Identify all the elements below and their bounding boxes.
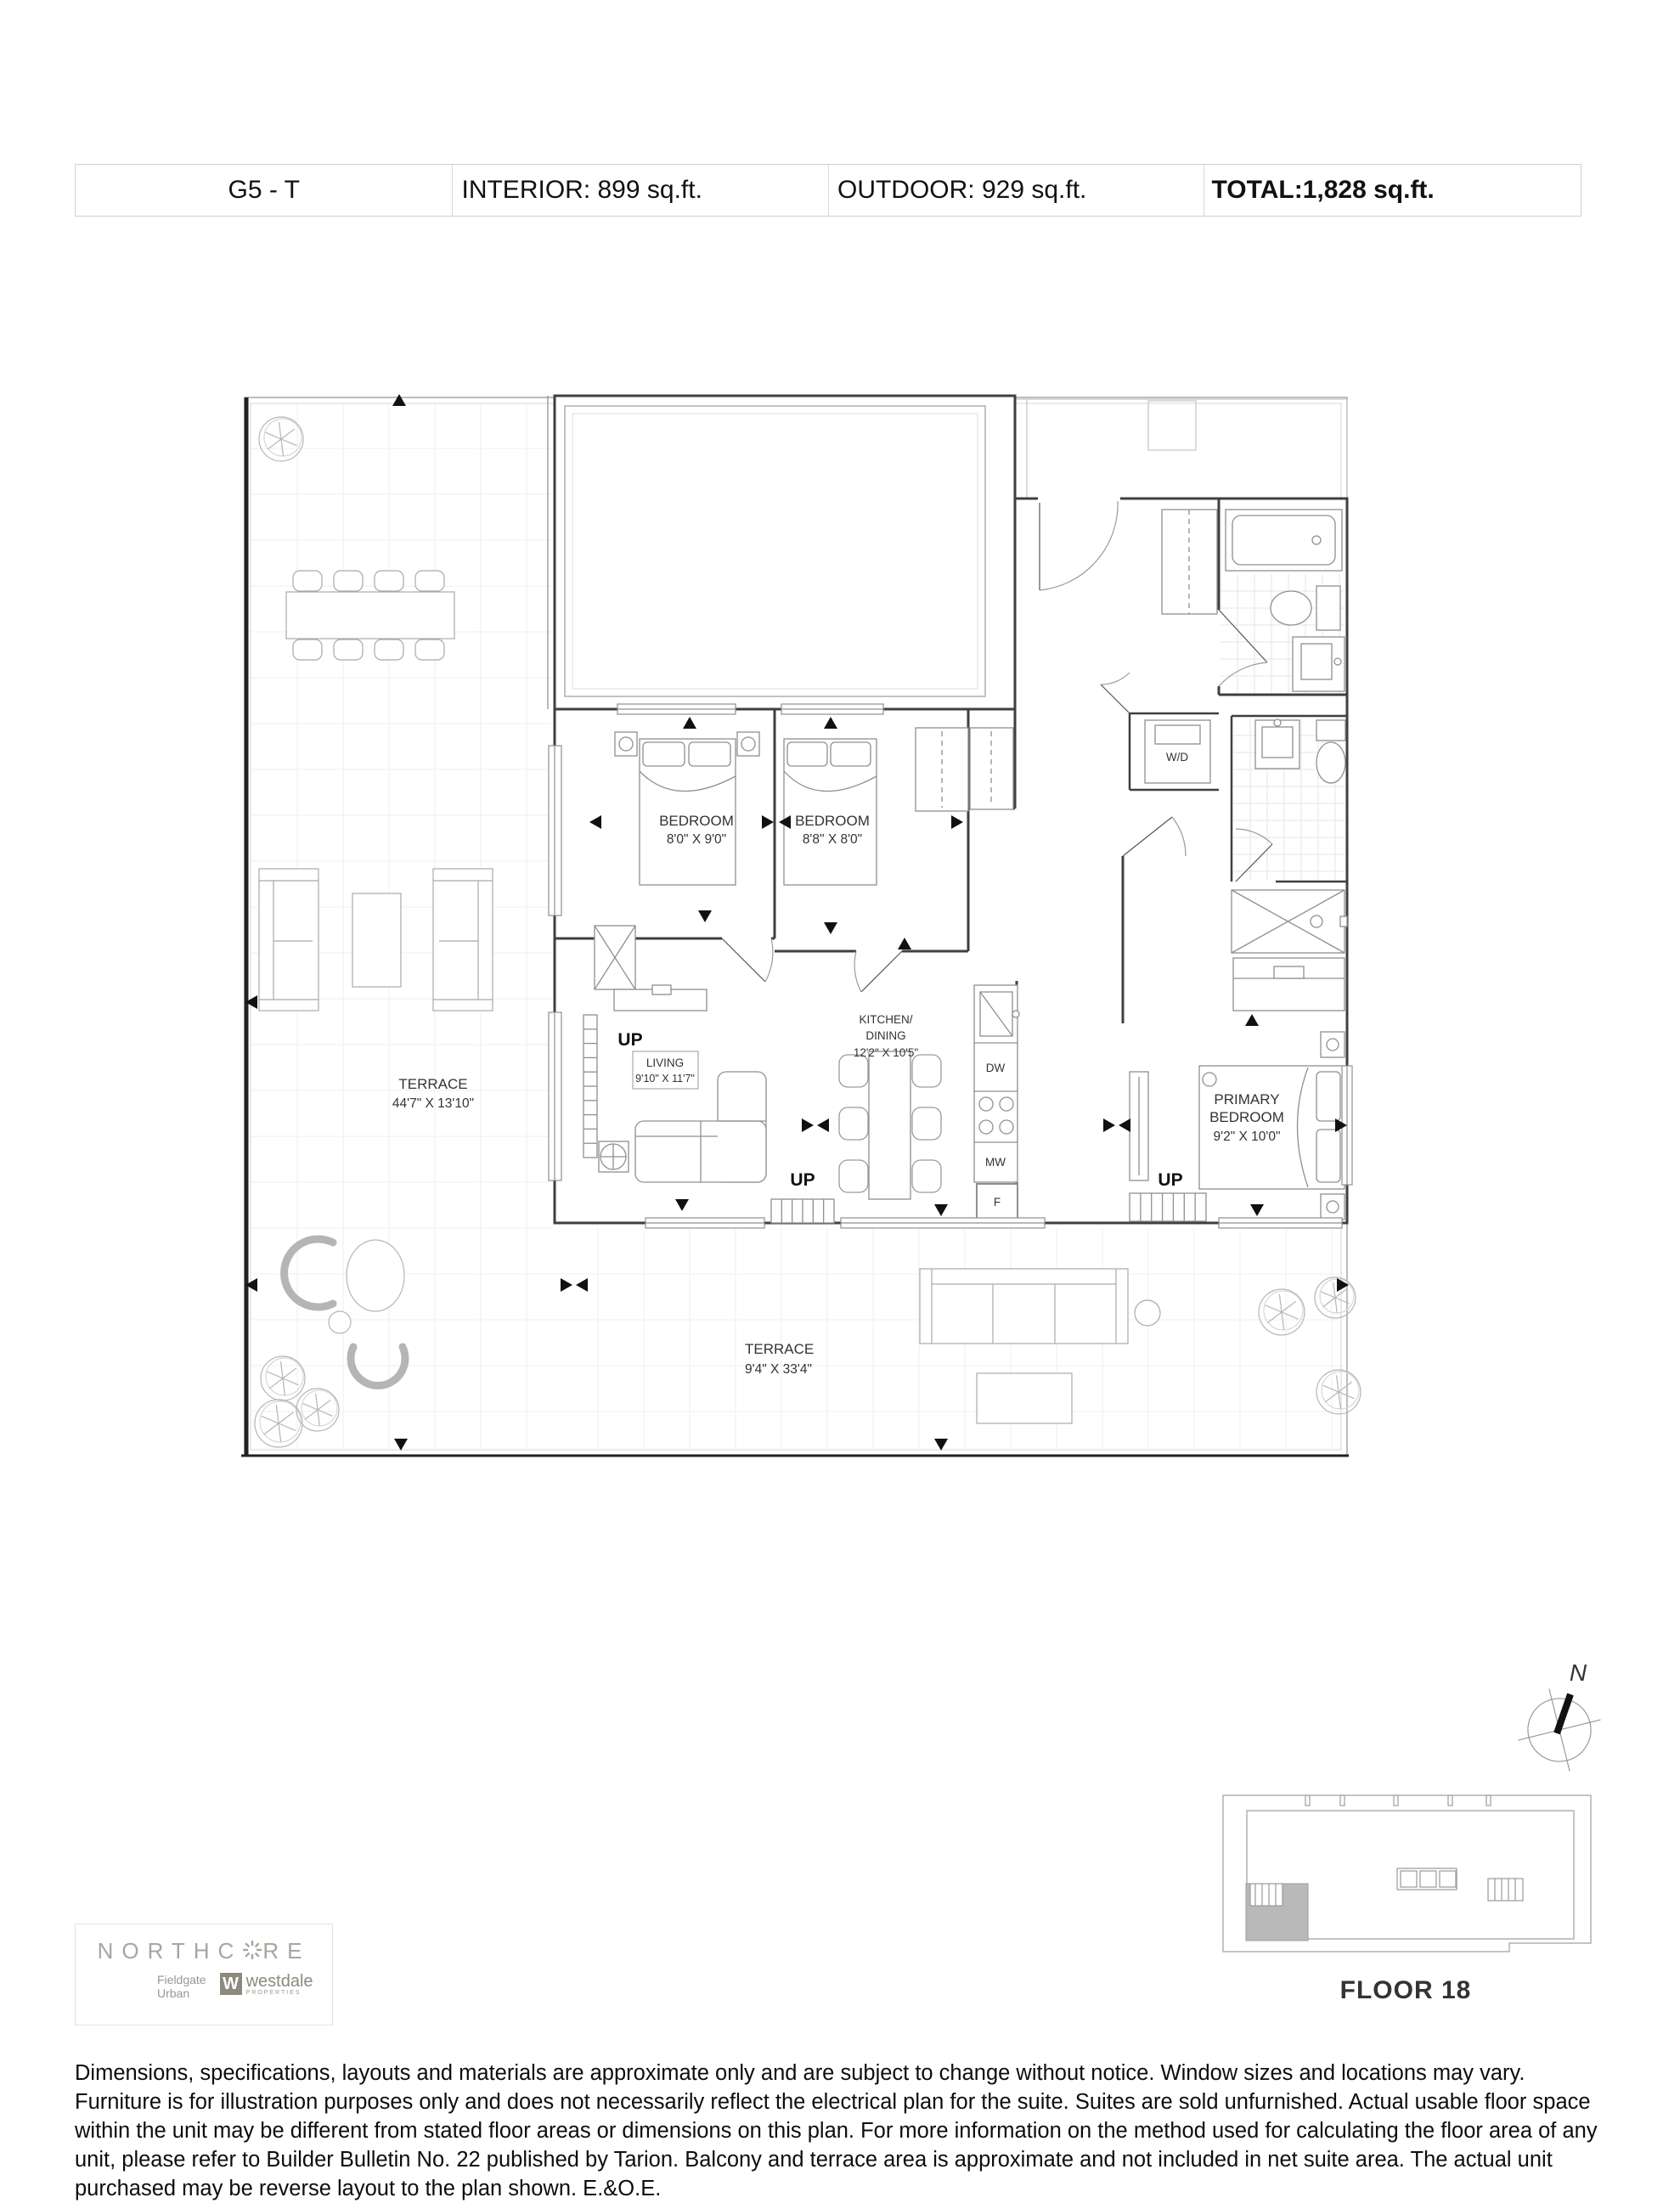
window: [781, 704, 883, 714]
keyplan: FLOOR 18: [1215, 1783, 1605, 2013]
logo-text-pre: NORTHC: [98, 1938, 243, 1964]
terrace-left-label: TERRACE: [398, 1076, 467, 1092]
building-context-lines: [1015, 399, 1347, 499]
terrace-bottom-label: TERRACE: [745, 1341, 814, 1357]
primary-closet: [1233, 958, 1345, 1011]
kitchen-dims: 12'2" X 10'5": [854, 1046, 919, 1059]
fieldgate-line1: Fieldgate: [157, 1973, 206, 1986]
dining-table: [839, 1051, 941, 1199]
kitchen-label-1: KITCHEN/: [859, 1013, 912, 1026]
disclaimer-text: Dimensions, specifications, layouts and …: [75, 2059, 1604, 2203]
unit-name: G5 - T: [76, 165, 453, 216]
ensuite-sink: [1255, 719, 1299, 769]
kitchen-label-2: DINING: [865, 1029, 905, 1042]
window: [549, 746, 561, 916]
window: [646, 1218, 764, 1228]
floor-plan-drawing: TERRACE 44'7" X 13'10" TERRACE 9'4" X 33…: [229, 382, 1367, 1469]
total-area: TOTAL:1,828 sq.ft.: [1204, 165, 1581, 216]
keyplan-floor-label: FLOOR 18: [1340, 1976, 1472, 2004]
compass-north-label: N: [1570, 1659, 1587, 1686]
total-label: TOTAL:: [1211, 176, 1302, 205]
terrace-bottom-dims: 9'4" X 33'4": [745, 1362, 812, 1377]
up-label-primary: UP: [1158, 1170, 1182, 1190]
primary-label-2: BEDROOM: [1209, 1109, 1284, 1125]
kitchen-counter: [974, 985, 1019, 1220]
partner-logos: Fieldgate Urban W westdale PROPERTIES: [157, 1973, 332, 2000]
bathtub: [1226, 510, 1342, 571]
living-dims: 9'10" X 11'7": [635, 1073, 695, 1085]
floorplan-page: { "header": { "unit": "G5 - T", "interio…: [0, 0, 1680, 2174]
console-table: [614, 985, 707, 1011]
westdale-mark-icon: W: [220, 1973, 242, 1995]
living-label: LIVING: [646, 1056, 684, 1069]
outdoor-chairs: [285, 1239, 405, 1386]
shower: [1232, 890, 1347, 953]
spec-header-bar: G5 - T INTERIOR: 899 sq.ft. OUTDOOR: 929…: [75, 164, 1581, 217]
terrace-left-dims: 44'7" X 13'10": [392, 1096, 474, 1111]
bed-2: [784, 739, 877, 885]
total-value: 1,828 sq.ft.: [1303, 176, 1435, 205]
interior-area: INTERIOR: 899 sq.ft.: [453, 165, 829, 216]
ensuite-toilet: [1316, 720, 1345, 783]
bedroom2-label: BEDROOM: [795, 813, 870, 829]
bathroom-sink: [1293, 637, 1345, 691]
north-compass-icon: N: [1503, 1652, 1631, 1788]
brand-logo-block: NORTHC RE Fieldgate Urban W westdale PRO…: [75, 1924, 333, 2026]
window: [617, 704, 736, 714]
bedroom1-label: BEDROOM: [659, 813, 734, 829]
open-to-below: [565, 406, 985, 696]
linen-closet: [595, 926, 635, 989]
outdoor-sofa-set: [920, 1269, 1160, 1423]
up-label-center: UP: [790, 1170, 815, 1190]
outdoor-dining-set: [286, 571, 454, 660]
westdale-name: westdale: [246, 1973, 313, 1990]
corridor-wardrobe: [1130, 1072, 1148, 1180]
wd-label: W/D: [1166, 751, 1188, 763]
westdale-sub: PROPERTIES: [246, 1990, 313, 1996]
entry-closet: [1162, 510, 1217, 614]
f-label: F: [994, 1196, 1001, 1209]
window: [549, 1012, 561, 1180]
side-table: [599, 1141, 629, 1172]
bedroom1-dims: 8'0" X 9'0": [667, 832, 726, 847]
outdoor-area: OUTDOOR: 929 sq.ft.: [829, 165, 1205, 216]
fieldgate-urban-logo: Fieldgate Urban: [157, 1973, 206, 2000]
window: [841, 1218, 1045, 1228]
bedroom2-dims: 8'8" X 8'0": [803, 832, 862, 847]
primary-dims: 9'2" X 10'0": [1214, 1130, 1281, 1144]
outdoor-lounge-set: [259, 869, 493, 1011]
northcore-logo: NORTHC RE: [76, 1938, 332, 1964]
logo-text-post: RE: [262, 1938, 310, 1964]
mw-label: MW: [985, 1156, 1006, 1169]
primary-label-1: PRIMARY: [1214, 1091, 1279, 1107]
fieldgate-line2: Urban: [157, 1986, 206, 2000]
window: [1219, 1218, 1342, 1228]
bedroom2-closet: [916, 728, 1013, 811]
up-label-living: UP: [617, 1030, 642, 1050]
dw-label: DW: [986, 1062, 1006, 1074]
living-label-box: LIVING 9'10" X 11'7": [633, 1051, 698, 1089]
logo-o-compass-icon: [242, 1940, 262, 1960]
westdale-logo: W westdale PROPERTIES: [220, 1973, 313, 1996]
